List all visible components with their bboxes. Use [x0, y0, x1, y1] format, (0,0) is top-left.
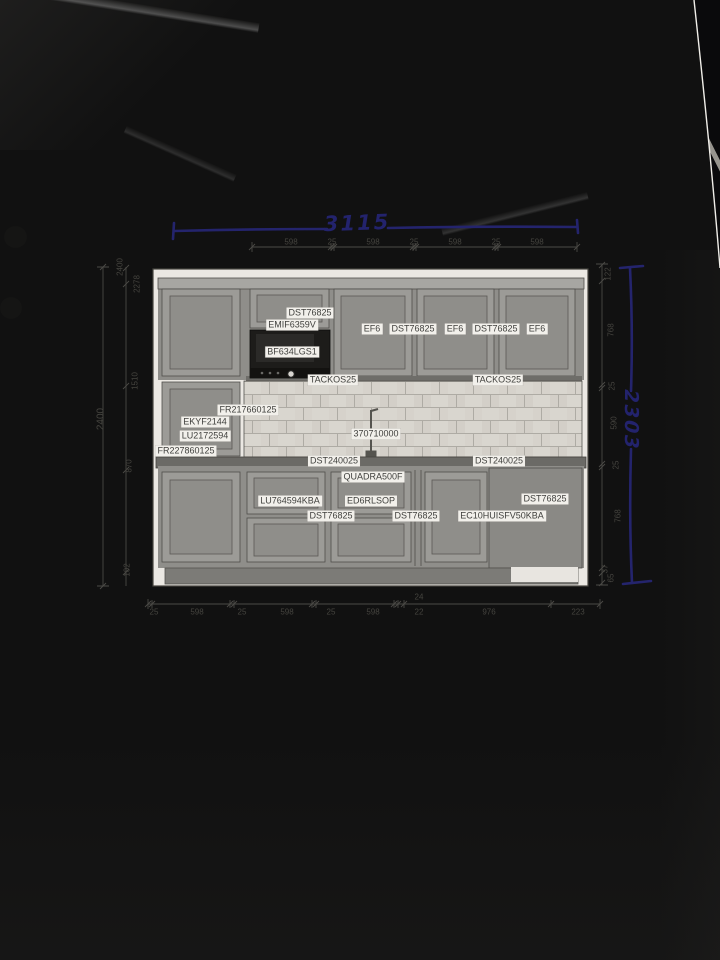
base-cabinets	[158, 466, 584, 568]
appliance-panel	[489, 468, 582, 568]
tall-cabinet-mid-panel	[162, 382, 240, 456]
handwritten-total-height: 2303	[620, 389, 642, 451]
photo-of-kitchen-plan: DST76825EMIF6359VBF634LGS1EF6DST76825EF6…	[0, 0, 720, 960]
microwave-appliance	[250, 330, 330, 378]
microwave-knob	[288, 371, 294, 377]
tile-backsplash	[244, 381, 582, 457]
plinth-notch	[511, 567, 578, 582]
upper-cabinets	[158, 278, 584, 381]
plinth	[165, 567, 578, 584]
kitchen-elevation-drawing	[0, 0, 720, 960]
handwritten-total-width: 3115	[323, 210, 390, 236]
